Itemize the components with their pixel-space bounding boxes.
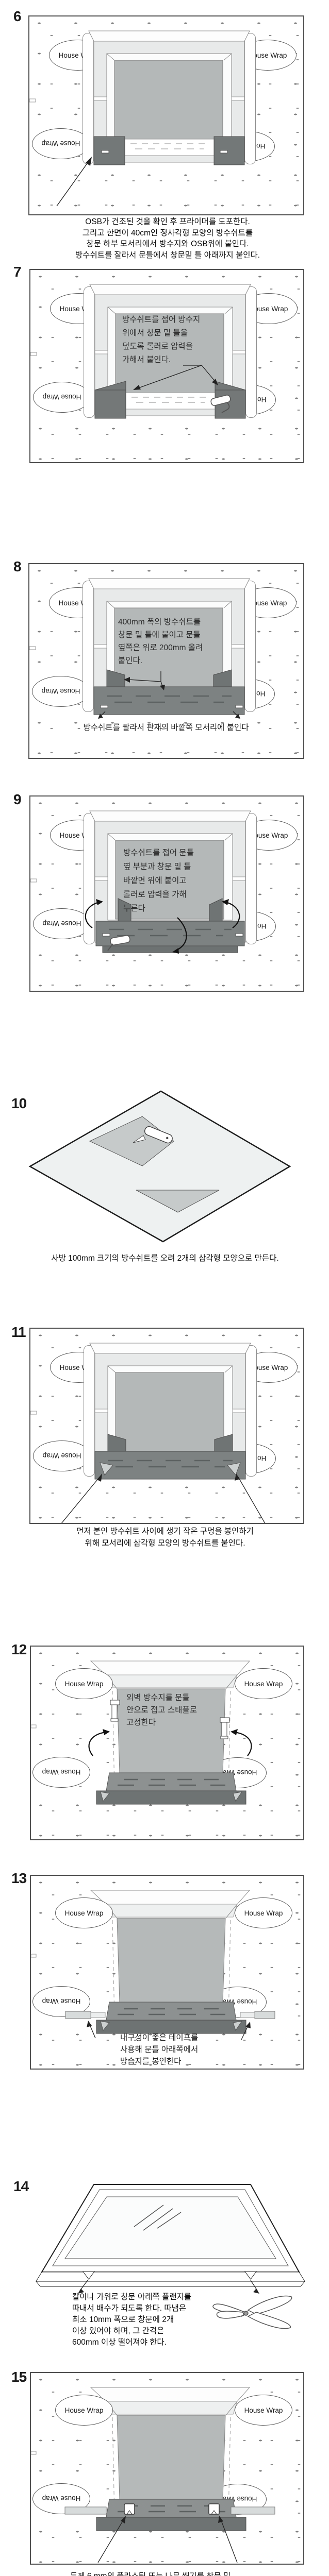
instruction-sheet: 6 House Wrap House Wrap House Wrap House… [0, 0, 329, 2576]
step-6-number: 6 [13, 8, 21, 25]
caption-line: 사용해 문틀 아래쪽에서 [120, 2044, 198, 2056]
note-line: 창문 밑 틀에 붙이고 문틀 [118, 629, 203, 641]
step-7-number: 7 [13, 264, 21, 280]
note-line: 고정한다 [126, 1717, 197, 1729]
caption-line: 위해 모서리에 삼각형 모양의 방수쉬트를 붙인다. [21, 1538, 309, 1550]
window-elevation-drawing [29, 16, 304, 215]
step-9-number: 9 [13, 791, 21, 808]
caption-line: 그리고 한면이 40cm인 정사각형 모양의 방수쉬트를 [21, 228, 315, 239]
step-15-figure: House Wrap House Wrap [30, 2372, 304, 2565]
step-13-number: 13 [11, 1870, 26, 1887]
house-wrap-balloon: House Wrap [235, 2395, 292, 2426]
caption-line: 이상 있어야 하며, 그 간격은 [72, 2326, 242, 2337]
note-line: 붙인다. [118, 654, 203, 667]
pointer-arrow [57, 157, 92, 206]
caption-line: 칼이나 가위로 창문 아래쪽 플랜지를 [72, 2292, 242, 2303]
cut-sheet-drawing [21, 1086, 309, 1247]
step-14-caption: 칼이나 가위로 창문 아래쪽 플랜지를 따내서 배수가 되도록 한다. 따냄은 … [72, 2292, 242, 2348]
step-6-caption: OSB가 건조된 것을 확인 후 프라이머를 도포한다. 그리고 한면이 40c… [21, 216, 315, 261]
note-line: 누른다 [123, 902, 194, 916]
step-8-inner-caption: 방수쉬트를 짤라서 판재의 바깥쪽 모서리에 붙인다 [45, 722, 287, 734]
sill-sheet-band [96, 1773, 246, 1804]
leader-arrows [61, 1473, 265, 1523]
step-12-window-note: 외벽 방수지를 문틀 안으로 접고 스태플로 고정한다 [126, 1692, 197, 1729]
caption-line: 내구성이 좋은 테이프를 [120, 2032, 198, 2044]
note-line: 바깥면 위에 붙이고 [123, 874, 194, 888]
note-line: 옆쪽은 위로 200mm 올려 [118, 641, 203, 654]
note-line: 위에서 창문 밑 틀을 [122, 327, 200, 340]
house-wrap-label: House Wrap [65, 1680, 104, 1688]
step-9-figure: House Wrap House Wrap House Wrap House W… [29, 795, 304, 992]
note-line: 400mm 폭의 방수쉬트를 [118, 616, 203, 629]
step-11-number: 11 [11, 1324, 26, 1341]
caption-line: 최소 10mm 폭으로 창문에 2개 [72, 2314, 242, 2326]
step-15-number: 15 [11, 2369, 26, 2385]
house-wrap-balloon: House Wrap [55, 1897, 113, 1928]
step-11-figure: House Wrap House Wrap House Wrap House W… [29, 1328, 304, 1524]
caption-line: 600mm 이상 떨어져야 한다. [72, 2337, 242, 2348]
step-7-window-note: 방수쉬트를 접어 방수지 위에서 창문 밑 틀을 덮도록 롤러로 압력을 가해서… [122, 313, 200, 367]
step-14-number: 14 [13, 2178, 28, 2195]
caption-line: 방습지를 봉인한다 [120, 2056, 198, 2067]
step-13-inner-caption: 내구성이 좋은 테이프를 사용해 문틀 아래쪽에서 방습지를 봉인한다 [120, 2032, 198, 2067]
note-line: 외벽 방수지를 문틀 [126, 1692, 197, 1704]
caption-line: 사방 100mm 크기의 방수쉬트를 오려 2개의 삼각형 모양으로 만든다. [10, 1253, 320, 1264]
step-13-figure: House Wrap House Wrap [30, 1875, 304, 2070]
house-wrap-label: House Wrap [65, 1909, 104, 1917]
caption-line: 먼저 붙인 방수쉬트 사이에 생기 작은 구멍을 봉인하기 [21, 1526, 309, 1538]
step-12-figure: House Wrap House Wrap [30, 1646, 304, 1840]
note-line: 방수쉬트를 접어 방수지 [122, 313, 200, 327]
note-line: 방수쉬트를 접어 문틀 [123, 846, 194, 860]
step-8-figure: House Wrap House Wrap House Wrap House W… [28, 563, 304, 759]
window-elevation-drawing [30, 1329, 304, 1523]
caption-line: 방수쉬트를 잘라서 문틀에서 창문밑 틀 아래까지 붙인다. [21, 250, 315, 261]
caption-line: OSB가 건조된 것을 확인 후 프라이머를 도포한다. [21, 216, 315, 228]
step-8-number: 8 [13, 558, 21, 575]
step-6-figure: House Wrap House Wrap House Wrap House W… [28, 15, 304, 215]
step-12-number: 12 [11, 1641, 26, 1658]
note-line: 롤러로 압력을 가해 [123, 888, 194, 902]
caption-line: 창문 하부 모서리에서 방수지와 OSB위에 붙인다. [21, 239, 315, 250]
caption-line: 두께 6 mm의 플라스틱 또는 나무 쐐기를 창문 밑 [70, 2571, 297, 2576]
step-7-figure: House Wrap House Wrap House Wrap House W… [29, 269, 304, 463]
note-line: 옆 부분과 창문 밑 틀 [123, 860, 194, 874]
caption-line: 따내서 배수가 되도록 한다. 따냄은 [72, 2303, 242, 2314]
house-wrap-balloon: House Wrap [55, 2395, 113, 2426]
house-wrap-label: House Wrap [65, 2406, 104, 2414]
stapler-icon [220, 1718, 229, 1739]
house-wrap-balloon: House Wrap [55, 1668, 113, 1699]
step-11-caption: 먼저 붙인 방수쉬트 사이에 생기 작은 구멍을 봉인하기 위해 모서리에 삼각… [21, 1526, 309, 1549]
house-wrap-label: House Wrap [244, 2406, 283, 2414]
step-9-window-note: 방수쉬트를 접어 문틀 옆 부분과 창문 밑 틀 바깥면 위에 붙이고 롤러로 … [123, 846, 194, 916]
step-8-window-note: 400mm 폭의 방수쉬트를 창문 밑 틀에 붙이고 문틀 옆쪽은 위로 200… [118, 616, 203, 667]
step-15-caption: 두께 6 mm의 플라스틱 또는 나무 쐐기를 창문 밑 틀에 놓아 창문을 지… [70, 2571, 297, 2576]
house-wrap-balloon: House Wrap [235, 1668, 292, 1699]
caption-line: 방수쉬트를 짤라서 판재의 바깥쪽 모서리에 붙인다 [45, 722, 287, 734]
sill-sheet-band [96, 2002, 246, 2033]
step-10-caption: 사방 100mm 크기의 방수쉬트를 오려 2개의 삼각형 모양으로 만든다. [10, 1253, 320, 1264]
house-wrap-balloon: House Wrap [235, 1897, 292, 1928]
house-wrap-label: House Wrap [244, 1680, 283, 1688]
note-line: 가해서 붙인다. [122, 353, 200, 367]
note-line: 안으로 접고 스태플로 [126, 1704, 197, 1717]
house-wrap-label: House Wrap [244, 1909, 283, 1917]
note-line: 덮도록 롤러로 압력을 [122, 340, 200, 353]
